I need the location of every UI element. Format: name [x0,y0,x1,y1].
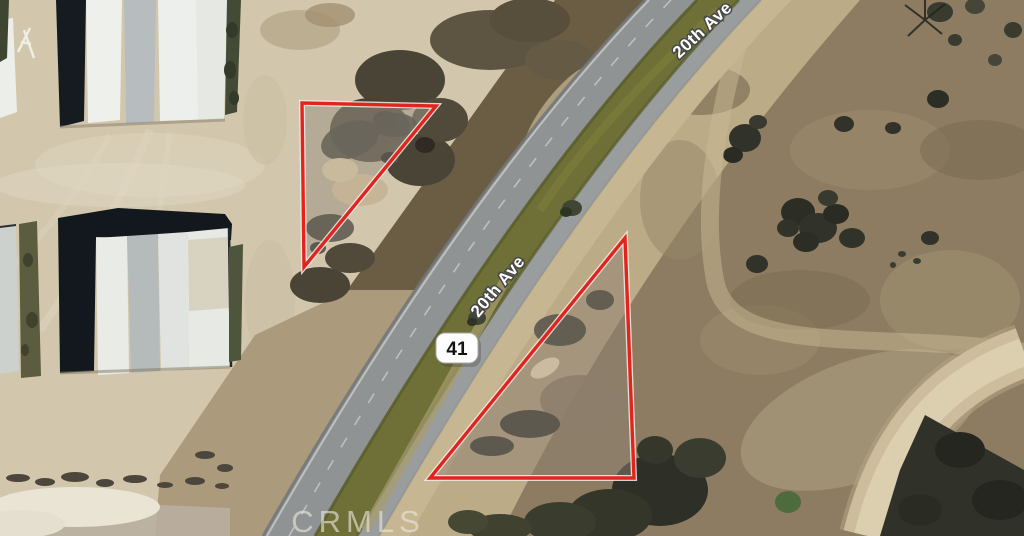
building-roof-dark [56,0,86,127]
highway-41-shield: 41 [436,333,481,367]
crmls-watermark: CRMLS [291,504,425,536]
building-roof [0,226,19,374]
building-roof [158,232,189,371]
building-roof [96,236,129,375]
map-canvas: 20th Ave 20th Ave 41 CRMLS [0,0,1024,536]
satellite-map: 20th Ave 20th Ave 41 CRMLS [0,0,1024,536]
highway-shield-number: 41 [446,339,468,360]
building-roof [127,234,160,373]
building-roof [86,0,122,123]
building-roof [124,0,156,124]
tree-row [229,244,243,362]
